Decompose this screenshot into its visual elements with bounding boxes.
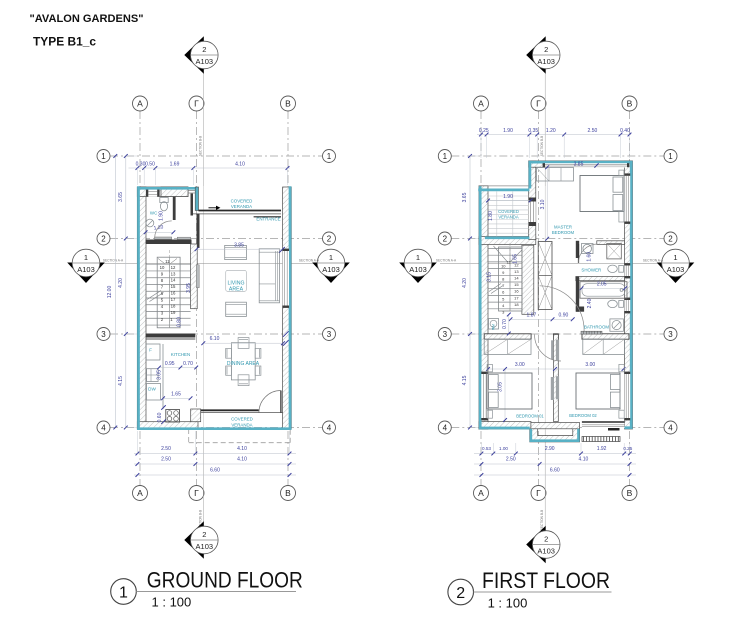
svg-text:B: B [627,99,633,109]
svg-text:F: F [149,347,152,352]
svg-text:2.40: 2.40 [587,298,593,308]
svg-text:6.60: 6.60 [210,467,220,473]
svg-text:19: 19 [171,310,176,315]
svg-text:3: 3 [327,330,332,339]
svg-text:SECTION A-A: SECTION A-A [103,259,124,263]
svg-text:14: 14 [514,276,519,281]
svg-text:A103: A103 [196,57,214,66]
svg-text:A103: A103 [537,57,555,66]
svg-text:4: 4 [443,423,448,432]
svg-text:6.60: 6.60 [550,467,560,473]
svg-text:1.65: 1.65 [171,392,181,398]
svg-text:1.00: 1.00 [499,446,508,451]
svg-text:A: A [137,488,143,498]
svg-text:1.80: 1.80 [488,211,494,221]
svg-text:A: A [137,99,143,109]
svg-text:SHOWER: SHOWER [581,268,601,273]
svg-text:2.50: 2.50 [588,128,598,134]
svg-text:0.50: 0.50 [145,161,155,167]
svg-text:1.90: 1.90 [503,128,513,134]
svg-text:A: A [478,488,484,498]
svg-text:"AVALON GARDENS": "AVALON GARDENS" [30,13,144,25]
svg-text:12.00: 12.00 [107,286,113,299]
svg-text:3.65: 3.65 [118,192,124,202]
svg-text:0.35: 0.35 [528,128,538,134]
svg-text:1: 1 [84,253,88,262]
svg-text:A103: A103 [322,265,340,274]
svg-text:Γ: Γ [194,488,199,498]
svg-text:0.25: 0.25 [623,446,632,451]
svg-text:B: B [285,488,291,498]
svg-text:Γ: Γ [536,488,541,498]
svg-text:4.10: 4.10 [579,456,589,462]
svg-text:WM: WM [492,324,496,330]
svg-text:VERANDA: VERANDA [498,215,518,220]
svg-text:GROUND FLOOR: GROUND FLOOR [147,568,303,593]
svg-text:2: 2 [544,45,548,54]
svg-text:1: 1 [443,152,448,161]
svg-text:1: 1 [416,253,420,262]
svg-text:2: 2 [101,234,106,243]
svg-text:Γ: Γ [536,99,541,109]
svg-text:0.25: 0.25 [479,128,489,134]
svg-text:SECTION B-B: SECTION B-B [198,136,202,156]
svg-text:17: 17 [514,295,519,300]
svg-text:1.90: 1.90 [159,211,165,221]
svg-text:A103: A103 [537,547,555,556]
svg-text:0.60: 0.60 [157,412,163,422]
svg-text:VERANDA: VERANDA [231,422,252,427]
svg-text:4.15: 4.15 [462,375,468,385]
svg-text:1.20: 1.20 [546,128,556,134]
svg-text:4: 4 [327,423,332,432]
svg-text:0.30: 0.30 [136,161,146,167]
svg-text:2: 2 [202,530,206,539]
svg-text:DW: DW [148,387,156,392]
svg-text:3.05: 3.05 [157,370,163,380]
svg-text:18: 18 [171,304,176,309]
svg-text:3: 3 [668,330,673,339]
svg-text:1.69: 1.69 [170,161,180,167]
svg-text:A103: A103 [667,265,685,274]
svg-text:0.70: 0.70 [502,319,508,329]
svg-text:3.85: 3.85 [574,161,584,167]
svg-text:11: 11 [165,259,170,264]
svg-text:18: 18 [514,302,519,307]
svg-text:1: 1 [673,253,677,262]
svg-text:1: 1 [329,253,333,262]
svg-text:A103: A103 [196,542,214,551]
svg-text:4.15: 4.15 [118,376,124,386]
svg-text:A103: A103 [77,265,95,274]
svg-text:BEDROOM 01: BEDROOM 01 [516,413,544,418]
svg-text:B: B [285,99,291,109]
svg-text:SECTION A-A: SECTION A-A [436,259,457,263]
svg-text:15: 15 [171,284,176,289]
svg-text:3.85: 3.85 [234,243,244,249]
svg-text:1.92: 1.92 [597,446,607,452]
svg-text:4.20: 4.20 [462,278,468,288]
svg-text:Γ: Γ [194,99,199,109]
svg-text:BATHROOM: BATHROOM [584,325,609,330]
svg-text:FIRST FLOOR: FIRST FLOOR [482,568,610,593]
svg-text:2.50: 2.50 [161,456,171,462]
svg-text:WC: WC [150,211,157,216]
svg-text:SECTION B-B: SECTION B-B [540,510,544,530]
svg-text:2.50: 2.50 [161,446,171,452]
svg-text:2.90: 2.90 [545,446,555,452]
svg-text:KITCHEN: KITCHEN [171,352,190,357]
svg-text:12: 12 [171,265,176,270]
svg-text:2.50: 2.50 [506,456,516,462]
svg-text:14: 14 [171,278,176,283]
svg-text:VERANDA: VERANDA [231,204,252,209]
svg-text:B: B [627,488,633,498]
svg-text:0.80: 0.80 [176,317,182,327]
svg-text:MASTER: MASTER [554,225,572,230]
svg-text:BEDROOM: BEDROOM [552,230,575,235]
svg-text:0.95: 0.95 [165,361,175,367]
svg-text:3.10: 3.10 [540,199,546,209]
svg-text:2: 2 [202,45,206,54]
svg-text:COVERED: COVERED [498,209,519,214]
svg-text:1.65: 1.65 [513,254,519,264]
svg-text:10: 10 [160,265,165,270]
svg-text:1.60: 1.60 [587,252,593,262]
svg-text:2: 2 [327,234,332,243]
svg-text:1.90: 1.90 [503,194,513,200]
svg-text:16: 16 [514,289,519,294]
svg-text:TYPE B1_c: TYPE B1_c [33,37,97,49]
svg-text:4.20: 4.20 [118,278,124,288]
svg-text:16: 16 [171,291,176,296]
svg-text:15: 15 [514,282,519,287]
svg-text:3.00: 3.00 [585,362,595,368]
svg-text:10: 10 [501,264,506,269]
svg-text:4.10: 4.10 [237,456,247,462]
svg-text:3: 3 [101,330,106,339]
svg-text:SECTION B-B: SECTION B-B [540,136,544,156]
svg-text:A103: A103 [409,265,427,274]
svg-text:2: 2 [544,534,548,543]
svg-text:2: 2 [456,585,465,602]
svg-text:0.70: 0.70 [183,361,193,367]
svg-text:17: 17 [171,297,176,302]
svg-text:2.05: 2.05 [597,282,607,288]
svg-text:6.10: 6.10 [210,336,220,342]
svg-text:0.40: 0.40 [620,128,630,134]
svg-text:A: A [478,99,484,109]
svg-text:3.65: 3.65 [462,192,468,202]
svg-text:2: 2 [668,234,673,243]
svg-text:AREA: AREA [229,286,244,292]
svg-text:1.87: 1.87 [527,313,537,319]
svg-text:1 : 100: 1 : 100 [488,596,528,611]
svg-text:4.10: 4.10 [235,161,245,167]
svg-text:3.15: 3.15 [486,272,492,282]
svg-text:1: 1 [119,585,128,602]
svg-text:1: 1 [668,152,673,161]
svg-text:1 : 100: 1 : 100 [152,595,192,610]
svg-text:13: 13 [171,271,176,276]
svg-text:COVERED: COVERED [231,198,253,203]
svg-text:1: 1 [327,152,332,161]
svg-text:3: 3 [443,330,448,339]
svg-text:0.90: 0.90 [559,313,569,319]
svg-text:2: 2 [443,234,448,243]
svg-text:COVERED: COVERED [231,417,253,422]
svg-text:1: 1 [101,152,106,161]
svg-text:13: 13 [514,269,519,274]
svg-text:SECTION A-A: SECTION A-A [643,259,664,263]
svg-text:BEDROOM 02: BEDROOM 02 [569,413,597,418]
svg-text:DINING AREA: DINING AREA [227,361,260,367]
svg-text:ENTRANCE: ENTRANCE [256,216,280,221]
svg-text:0.53: 0.53 [482,446,491,451]
svg-text:4: 4 [101,423,106,432]
svg-text:SECTION A-A: SECTION A-A [299,259,320,263]
svg-text:3.00: 3.00 [515,362,525,368]
svg-text:4: 4 [668,423,673,432]
svg-text:3.95: 3.95 [186,283,192,293]
svg-text:4.10: 4.10 [237,446,247,452]
